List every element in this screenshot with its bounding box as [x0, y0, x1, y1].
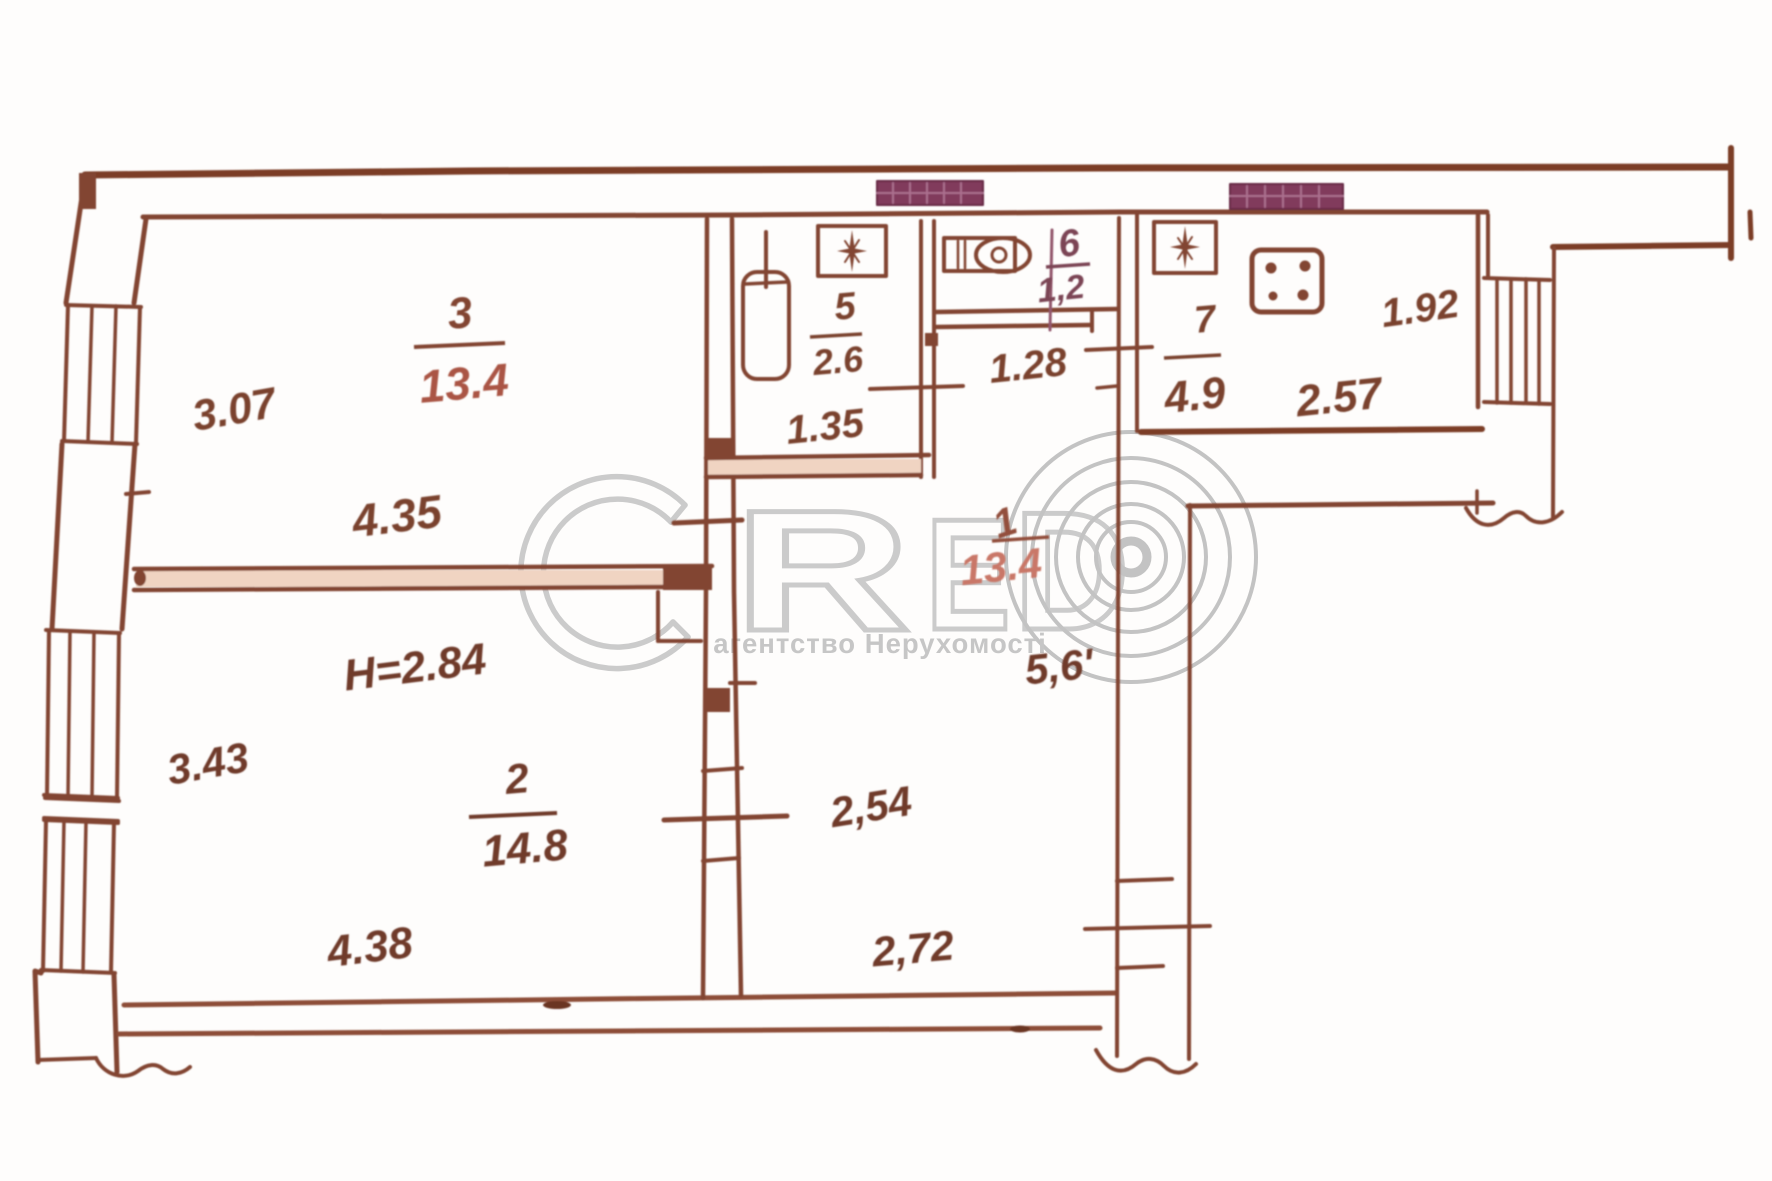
svg-text:1,2: 1,2 [1036, 268, 1087, 311]
svg-text:4.35: 4.35 [348, 485, 446, 548]
svg-text:13.4: 13.4 [958, 539, 1044, 594]
svg-text:2.6: 2.6 [810, 338, 865, 383]
svg-text:1.35: 1.35 [784, 401, 867, 453]
svg-text:5,6': 5,6' [1022, 639, 1097, 693]
svg-text:2.57: 2.57 [1293, 368, 1387, 426]
svg-text:2: 2 [502, 754, 530, 803]
svg-text:13.4: 13.4 [417, 353, 511, 413]
svg-text:3: 3 [446, 288, 475, 339]
svg-text:4.9: 4.9 [1161, 368, 1228, 423]
svg-text:1.28: 1.28 [987, 340, 1070, 392]
svg-text:агентство Нерухомості: агентство Нерухомості [713, 628, 1047, 659]
svg-text:2,72: 2,72 [869, 922, 956, 976]
svg-text:14.8: 14.8 [480, 820, 570, 876]
